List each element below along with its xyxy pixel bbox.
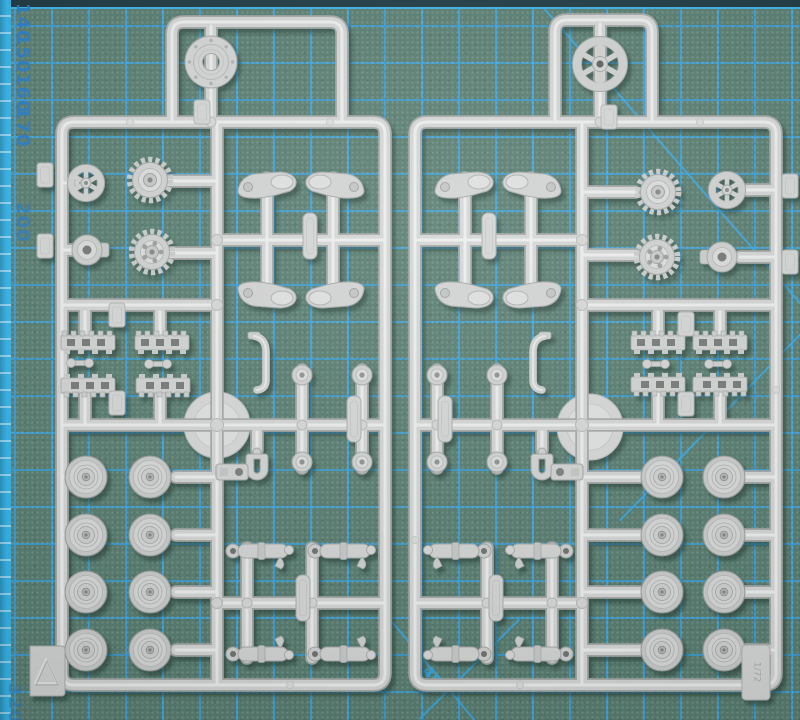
pipe-bracket-part <box>248 332 266 390</box>
pipe-bracket-part <box>533 332 551 390</box>
mounting-plate-part <box>482 213 496 259</box>
drive-sprocket-part <box>132 232 172 272</box>
fender-bracket-part <box>435 172 493 198</box>
pin-part <box>705 360 732 369</box>
return-roller-part <box>427 452 447 472</box>
road-wheel-part <box>703 571 745 613</box>
mounting-plate-part <box>438 396 452 442</box>
road-wheel-part <box>641 629 683 671</box>
return-roller-part <box>487 452 507 472</box>
drive-sprocket-part <box>130 160 170 200</box>
road-wheel-part <box>129 629 171 671</box>
road-wheel-part <box>65 571 107 613</box>
sprues-graphic: 1/72 <box>0 0 800 720</box>
hub-cap-part <box>700 242 737 272</box>
mounting-plate-part <box>303 213 317 259</box>
spoked-idler-wheel-part <box>573 37 628 92</box>
mounting-plate-part <box>489 575 503 621</box>
fender-bracket-part <box>503 282 561 308</box>
bracket-part <box>551 464 583 480</box>
part-number-tab <box>782 174 798 198</box>
road-wheel-part <box>641 571 683 613</box>
corner-marker-tab <box>30 646 65 696</box>
road-wheel-part <box>703 456 745 498</box>
return-roller-part <box>352 452 372 472</box>
return-roller-part <box>487 365 507 385</box>
part-number-tab <box>678 312 694 336</box>
fender-bracket-part <box>238 282 296 308</box>
road-wheel-part <box>703 629 745 671</box>
tow-clevis-part <box>246 448 268 480</box>
drive-sprocket-part <box>638 172 678 212</box>
road-wheel-part <box>65 629 107 671</box>
drive-sprocket-part <box>637 237 677 277</box>
bracket-part <box>216 464 248 480</box>
part-number-tab <box>109 303 125 327</box>
tow-clevis-part <box>531 448 553 480</box>
road-wheel-part <box>641 514 683 556</box>
part-number-tab <box>37 163 53 187</box>
hub-cap-part <box>72 235 109 265</box>
road-wheel-part <box>641 456 683 498</box>
fender-bracket-part <box>435 282 493 308</box>
pin-part <box>643 360 670 369</box>
part-number-tab <box>37 234 53 258</box>
return-roller-part <box>292 365 312 385</box>
road-wheel-part <box>129 456 171 498</box>
part-number-tab <box>109 391 125 415</box>
part-number-tab <box>601 105 617 129</box>
suspension-cylinder-part <box>226 543 294 570</box>
pin-part <box>145 360 172 369</box>
fender-bracket-part <box>306 172 364 198</box>
road-wheel-part <box>703 514 745 556</box>
road-wheel-part <box>65 456 107 498</box>
return-roller-part <box>352 365 372 385</box>
photo-of-model-sprues-on-cutting-mat: 140 150 160 170 200 320 45° <box>0 0 800 720</box>
return-roller-part <box>292 452 312 472</box>
return-roller-part <box>427 365 447 385</box>
part-number-tab <box>678 392 694 416</box>
spoked-idler-wheel-part <box>708 171 745 208</box>
fender-bracket-part <box>503 172 561 198</box>
road-wheel-part <box>65 514 107 556</box>
road-wheel-part <box>129 571 171 613</box>
mounting-plate-part <box>296 575 310 621</box>
fender-bracket-part <box>238 172 296 198</box>
suspension-cylinder-part <box>506 543 574 570</box>
scale-marking-tab: 1/72 <box>742 645 770 700</box>
part-number-tab <box>194 100 210 124</box>
right-sprue: 1/72 <box>412 20 799 700</box>
fender-bracket-part <box>306 282 364 308</box>
left-sprue <box>30 22 385 696</box>
suspension-cylinder-part <box>506 636 574 663</box>
part-number-tab <box>782 250 798 274</box>
mounting-plate-part <box>347 396 361 442</box>
suspension-cylinder-part <box>226 636 294 663</box>
road-wheel-part <box>129 514 171 556</box>
scale-text: 1/72 <box>752 662 762 682</box>
spoked-idler-wheel-part <box>67 164 104 201</box>
pin-part <box>67 359 94 368</box>
